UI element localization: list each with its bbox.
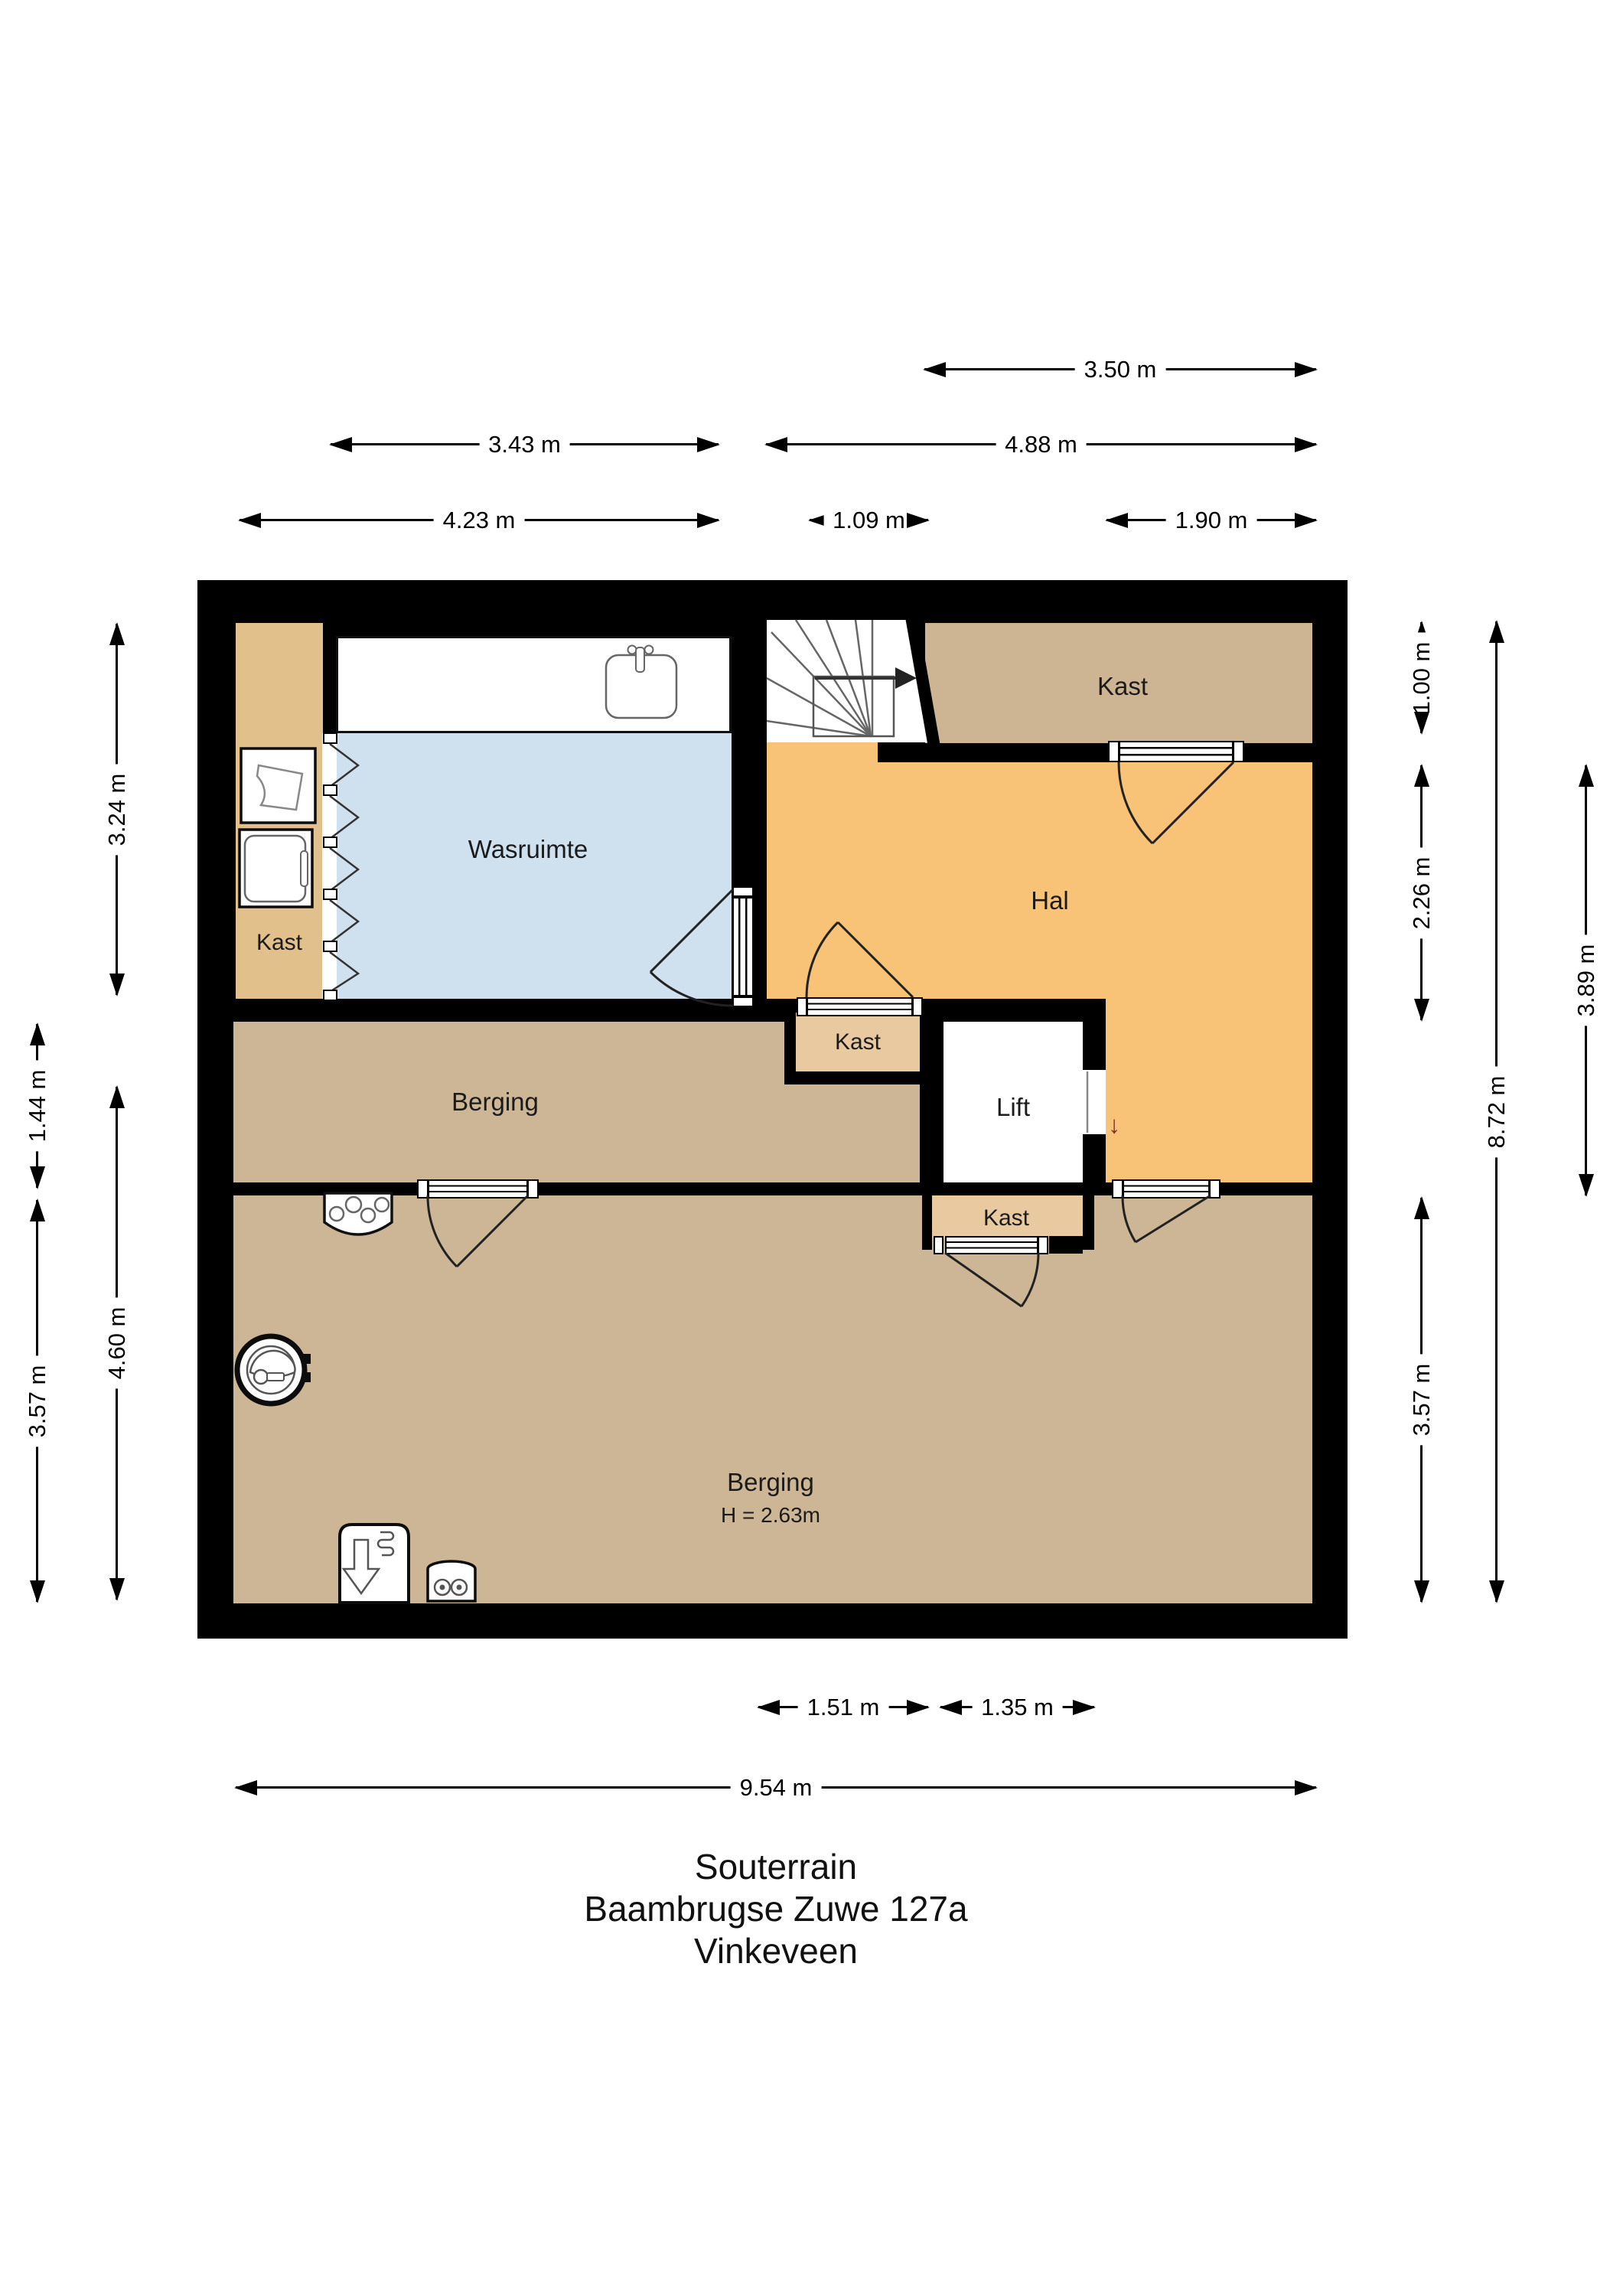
dim-right-1_00: 1.00 m <box>1420 622 1423 733</box>
room-label-lift: Lift <box>996 1093 1030 1122</box>
room-label-kast-middle: Kast <box>835 1029 881 1055</box>
dim-label: 1.00 m <box>1406 632 1437 723</box>
door-bar-berging-left <box>428 1179 528 1199</box>
dim-label: 1.09 m <box>823 507 914 534</box>
lift-door-niche <box>1083 1070 1106 1134</box>
dim-right-3_57: 3.57 m <box>1420 1198 1423 1602</box>
door-cap <box>527 1179 539 1199</box>
room-hal-a <box>767 741 878 999</box>
door-cap <box>732 886 754 897</box>
dim-label: 4.60 m <box>102 1298 132 1389</box>
plan-title-floor: Souterrain <box>695 1846 857 1887</box>
dim-right-3_89: 3.89 m <box>1585 765 1587 1195</box>
kast-lower-wall-stub <box>1049 1236 1083 1254</box>
door-cap <box>1038 1236 1048 1254</box>
dim-right-8_72: 8.72 m <box>1495 621 1498 1602</box>
dim-label: 3.43 m <box>479 431 570 458</box>
dim-top-4_23: 4.23 m <box>240 519 719 521</box>
plan-title-city: Vinkeveen <box>694 1930 858 1971</box>
dim-left-3_24: 3.24 m <box>116 624 118 995</box>
bifold-door-rail <box>322 733 337 999</box>
dim-label: 3.24 m <box>102 764 132 855</box>
door-bar-kast-lower <box>945 1236 1038 1254</box>
room-label-berging-lower: Berging <box>727 1468 814 1497</box>
door-cap <box>1233 741 1244 762</box>
door-bar-hal-berging <box>1123 1179 1210 1199</box>
room-label-kast-lower: Kast <box>983 1205 1029 1231</box>
dim-label: 3.57 m <box>22 1355 53 1446</box>
door-bar-wasruimte <box>732 897 754 996</box>
floor-plan-page: 3.50 m 3.43 m 4.88 m 4.23 m 1.09 m 1.90 … <box>0 0 1623 2296</box>
door-cap <box>912 997 923 1016</box>
dim-label: 2.26 m <box>1406 847 1437 938</box>
wasruimte-counter <box>336 636 732 733</box>
door-bar-kast-middle <box>807 997 913 1016</box>
dim-label: 9.54 m <box>731 1774 822 1802</box>
dim-label: 8.72 m <box>1481 1066 1512 1157</box>
door-bar-kast-top-right <box>1119 741 1234 762</box>
kast-lower-door-cap <box>934 1236 943 1254</box>
door-cap <box>1108 741 1119 762</box>
dim-left-3_57: 3.57 m <box>36 1200 38 1602</box>
dim-label: 1.35 m <box>972 1694 1063 1721</box>
dim-label: 3.50 m <box>1075 356 1166 383</box>
dim-right-2_26: 2.26 m <box>1420 765 1423 1020</box>
room-wasruimte <box>336 733 732 999</box>
dim-label: 4.88 m <box>996 431 1087 458</box>
dim-top-4_88: 4.88 m <box>766 443 1316 445</box>
room-hal-b <box>878 762 1312 999</box>
dim-label: 1.44 m <box>22 1061 53 1152</box>
dim-top-3_50: 3.50 m <box>924 368 1316 370</box>
room-berging-pocket <box>784 1084 920 1182</box>
door-cap <box>417 1179 429 1199</box>
dim-bottom-9_54: 9.54 m <box>236 1786 1316 1789</box>
dim-top-1_90: 1.90 m <box>1106 519 1316 521</box>
dim-bottom-1_35: 1.35 m <box>940 1706 1094 1708</box>
room-label-berging-height: H = 2.63m <box>721 1503 820 1528</box>
dim-top-3_43: 3.43 m <box>331 443 719 445</box>
dim-left-4_60: 4.60 m <box>116 1087 118 1600</box>
door-cap <box>797 997 807 1016</box>
kast-lower-wall-right <box>1083 1182 1094 1250</box>
door-cap <box>1209 1179 1221 1199</box>
room-label-berging-upper: Berging <box>451 1088 539 1117</box>
door-cap <box>732 996 754 1007</box>
dim-label: 3.89 m <box>1571 935 1602 1026</box>
room-hal-c <box>1106 999 1312 1182</box>
lift-down-arrow: ↓ <box>1108 1111 1120 1140</box>
room-label-kast-left: Kast <box>256 930 302 956</box>
dim-label: 3.57 m <box>1406 1355 1437 1446</box>
room-berging-lower <box>233 1195 1312 1603</box>
plan-title-address: Baambrugse Zuwe 127a <box>584 1888 967 1929</box>
door-cap <box>1112 1179 1123 1199</box>
room-label-wasruimte: Wasruimte <box>468 835 588 864</box>
dim-label: 4.23 m <box>434 507 525 534</box>
room-label-hal: Hal <box>1031 886 1069 915</box>
dim-label: 1.51 m <box>798 1694 889 1721</box>
room-label-kast-top-right: Kast <box>1097 672 1148 701</box>
dim-left-1_44: 1.44 m <box>36 1024 38 1188</box>
kast-lower-wall-left <box>922 1182 932 1250</box>
dim-bottom-1_51: 1.51 m <box>758 1706 928 1708</box>
dim-top-1_09: 1.09 m <box>810 519 928 521</box>
wall-under-stairs <box>878 741 925 762</box>
dim-label: 1.90 m <box>1166 507 1257 534</box>
